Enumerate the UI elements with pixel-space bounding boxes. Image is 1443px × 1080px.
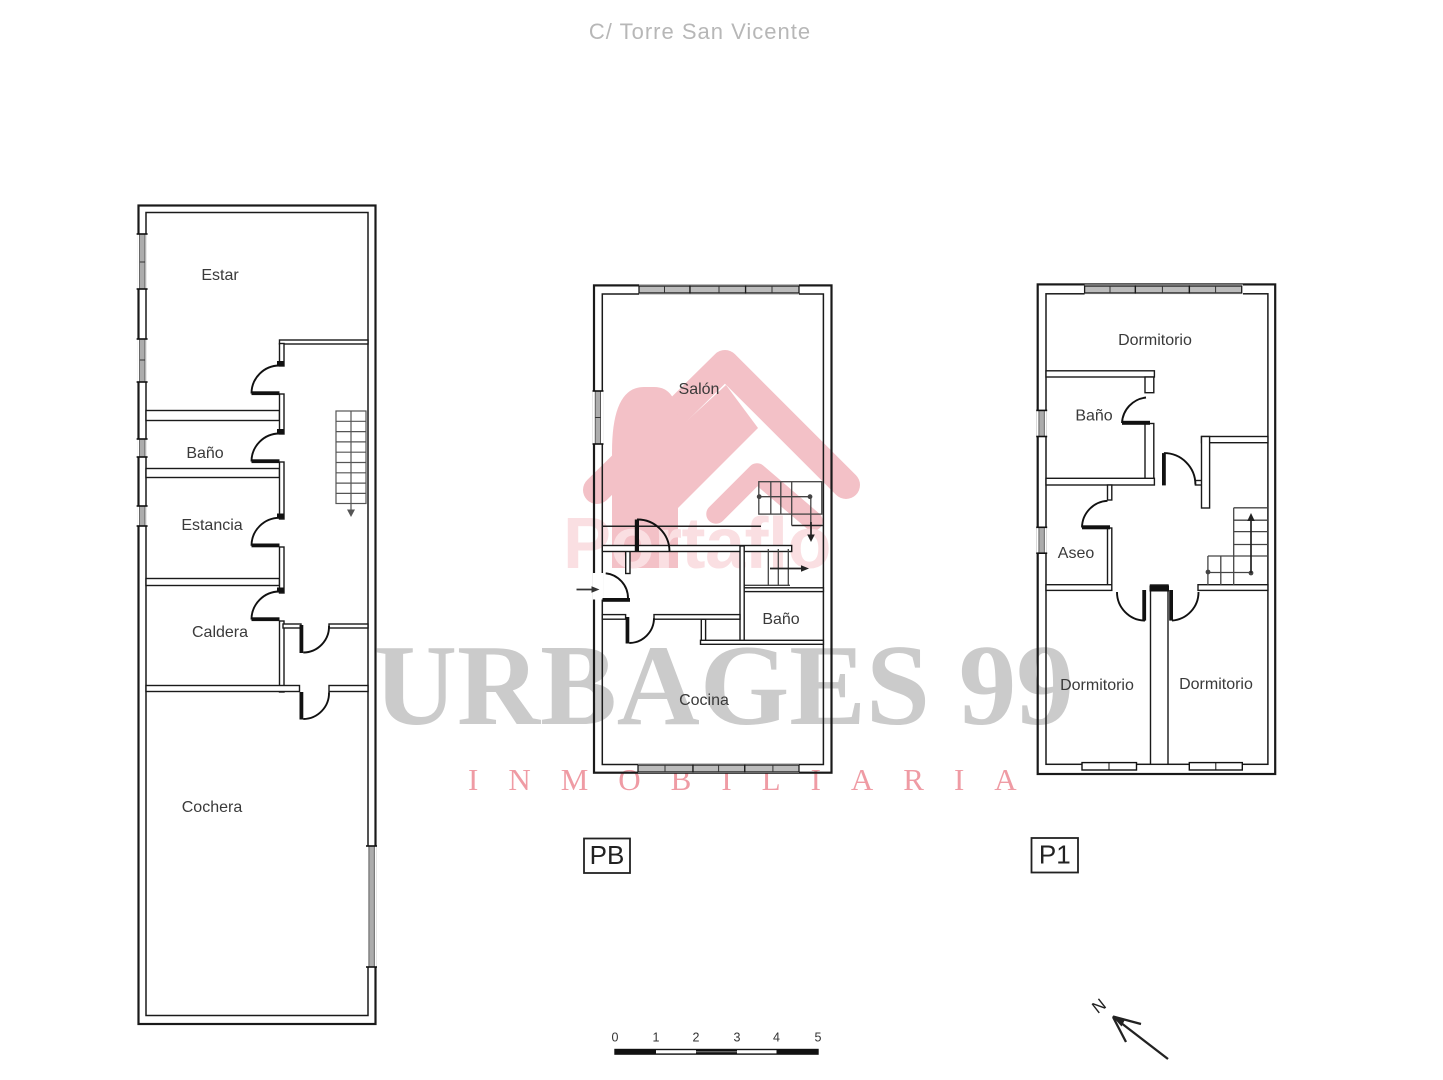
svg-text:Dormitorio: Dormitorio [1179,676,1253,693]
svg-text:Portaflo: Portaflo [563,504,831,584]
svg-text:Dormitorio: Dormitorio [1060,677,1134,694]
svg-text:Estar: Estar [201,267,239,284]
svg-text:Caldera: Caldera [192,624,248,641]
svg-text:4: 4 [773,1031,780,1045]
svg-text:5: 5 [815,1031,822,1045]
svg-text:Dormitorio: Dormitorio [1118,332,1192,349]
svg-text:1: 1 [653,1031,660,1045]
svg-text:P1: P1 [1039,840,1071,870]
svg-text:3: 3 [734,1031,741,1045]
svg-text:Cocina: Cocina [679,692,729,709]
svg-text:Baño: Baño [1075,408,1112,425]
svg-text:Estancia: Estancia [181,517,242,534]
svg-text:Baño: Baño [186,445,223,462]
svg-text:Baño: Baño [762,611,799,628]
svg-text:Aseo: Aseo [1058,545,1095,562]
svg-text:Salón: Salón [679,381,720,398]
svg-text:Cochera: Cochera [182,799,243,816]
svg-text:0: 0 [612,1031,619,1045]
svg-text:2: 2 [693,1031,700,1045]
svg-text:C/ Torre San Vicente: C/ Torre San Vicente [589,19,811,44]
svg-text:PB: PB [590,840,625,870]
